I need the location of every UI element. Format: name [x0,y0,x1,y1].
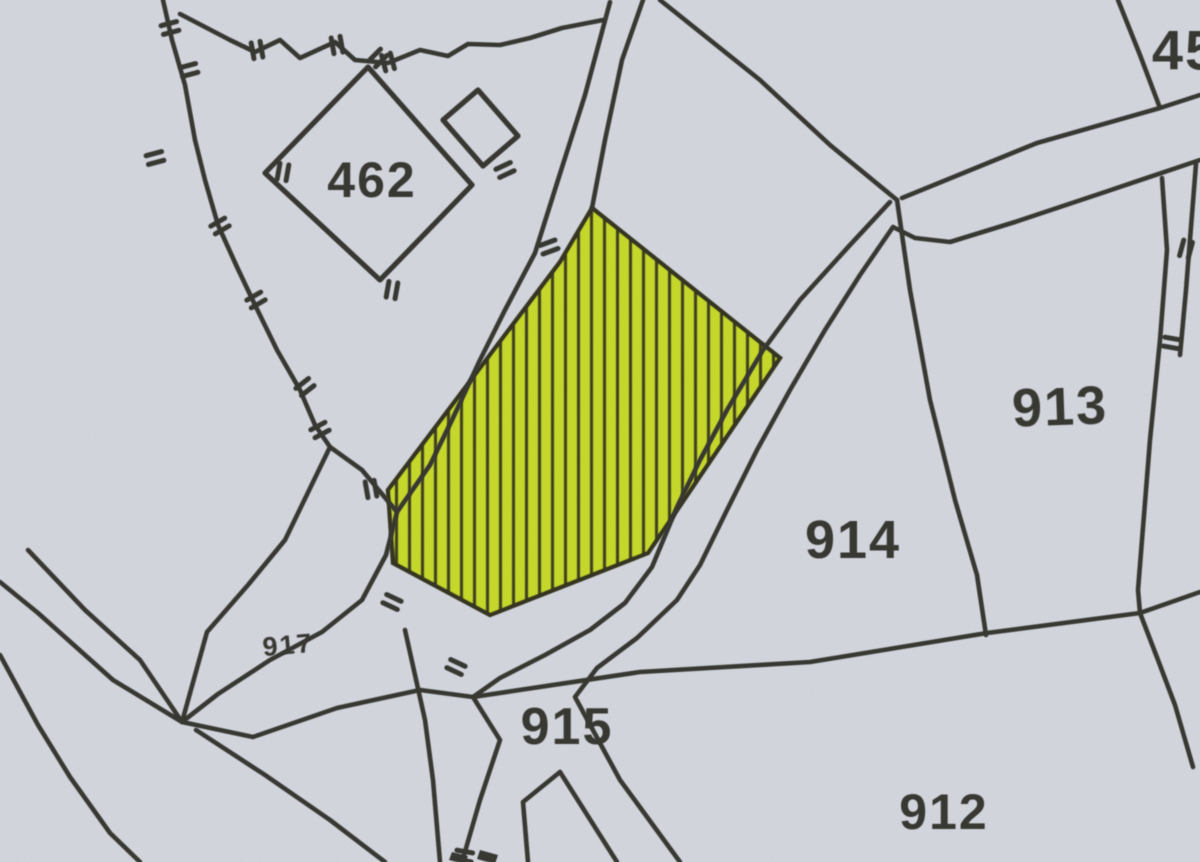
paper-grain-texture [0,0,1200,862]
cadastral-map: 462 45 913 914 915 912 917 [0,0,1200,862]
map-canvas: 462 45 913 914 915 912 917 [0,0,1200,862]
